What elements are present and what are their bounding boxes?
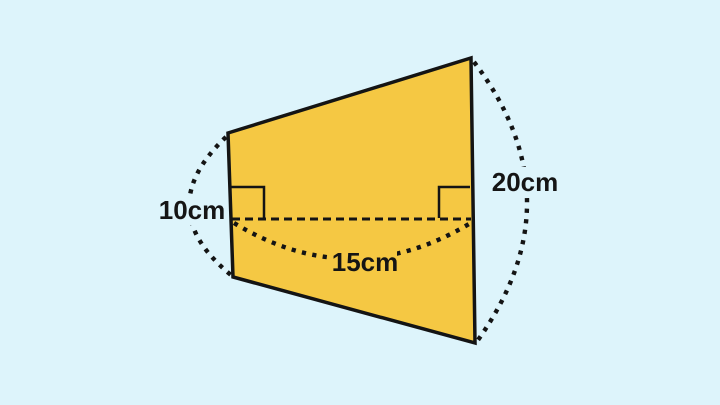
diagram-canvas: 10cm 20cm 15cm xyxy=(0,0,720,405)
trapezoid-figure: 10cm 20cm 15cm xyxy=(0,0,720,405)
mid-width-label: 15cm xyxy=(332,247,399,277)
right-height-label: 20cm xyxy=(492,167,559,197)
left-height-label: 10cm xyxy=(159,195,226,225)
right-height-dotted-arc xyxy=(474,62,527,340)
